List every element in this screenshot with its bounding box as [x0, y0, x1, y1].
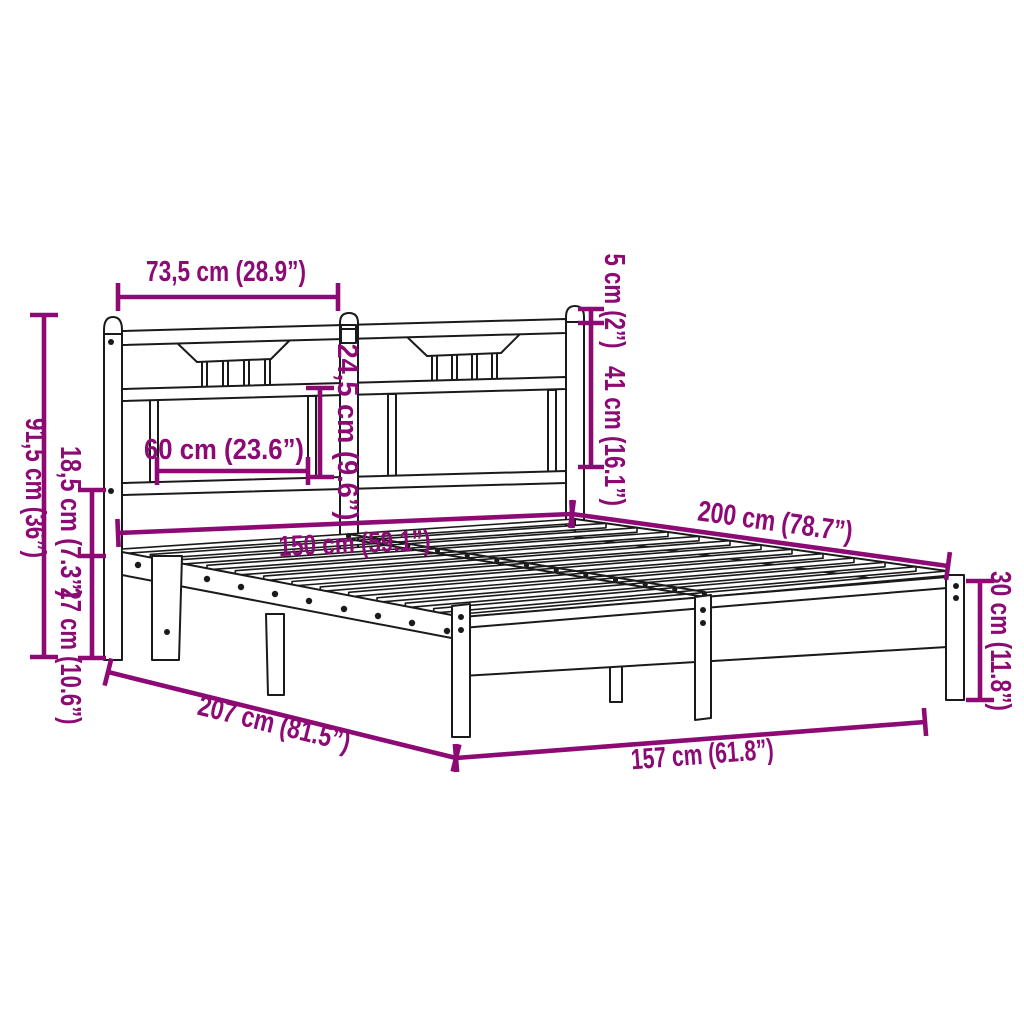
dimension-post-cap-height: 5 cm (2”)	[578, 254, 630, 349]
foot-frame	[452, 575, 964, 737]
dimension-headboard-total-height: 91,5 cm (36”)	[19, 315, 58, 657]
dimension-headboard-section-width: 73,5 cm (28.9”)	[118, 256, 338, 311]
dimension-label: 41 cm (16.1”)	[598, 366, 630, 506]
dimension-label: 27 cm (10.6”)	[54, 588, 86, 725]
dimension-foot-frame-height: 30 cm (11.8”)	[966, 571, 1016, 711]
dimension-label: 18,5 cm (7.3”)	[54, 446, 86, 598]
dimension-label: 30 cm (11.8”)	[984, 571, 1016, 711]
dimension-headboard-upper-height: 41 cm (16.1”)	[578, 323, 630, 506]
dimension-label: 60 cm (23.6”)	[144, 434, 304, 466]
dimension-label: 150 cm (59.1”)	[278, 525, 431, 563]
dimension-panel-opening-width: 60 cm (23.6”)	[144, 434, 308, 485]
diagram-canvas: 73,5 cm (28.9”) 5 cm (2”) 41 cm (16.1”) …	[0, 0, 1024, 1024]
dimension-overall-width: 157 cm (61.8”)	[455, 708, 926, 776]
dimension-headboard-above-frame: 18,5 cm (7.3”)	[54, 446, 106, 598]
dimension-label: 73,5 cm (28.9”)	[146, 256, 306, 288]
dimension-label: 5 cm (2”)	[598, 254, 630, 349]
dimension-label: 157 cm (61.8”)	[630, 734, 775, 777]
dimension-label: 24,5 cm (9.6”)	[331, 344, 363, 521]
bed-dimension-diagram: 73,5 cm (28.9”) 5 cm (2”) 41 cm (16.1”) …	[0, 0, 1024, 1024]
dimension-label: 207 cm (81.5”)	[195, 690, 354, 759]
dimension-label: 91,5 cm (36”)	[19, 418, 51, 558]
